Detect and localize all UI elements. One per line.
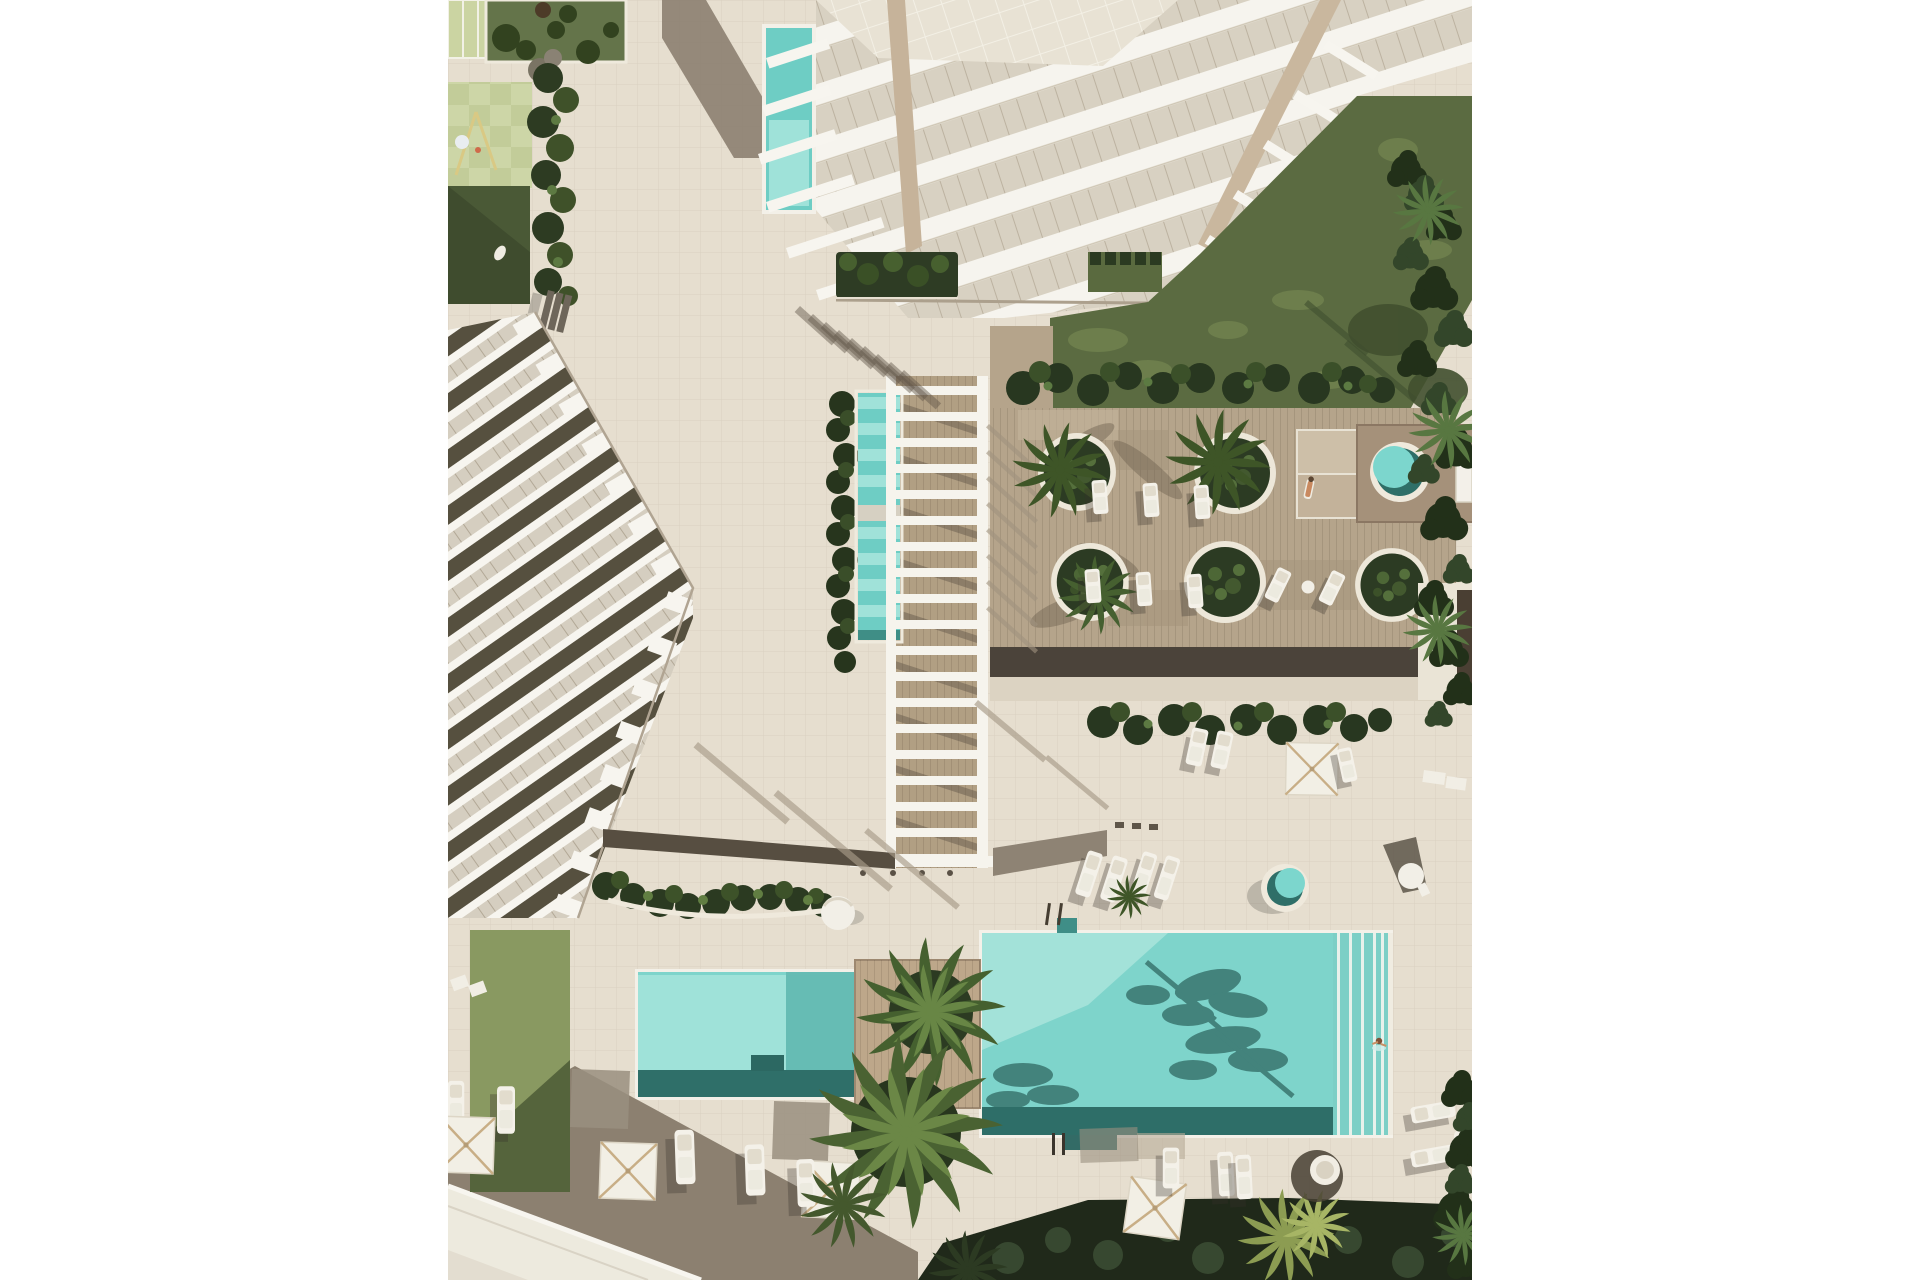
render-canvas bbox=[448, 0, 1472, 1280]
tree-trunk bbox=[535, 2, 551, 18]
deck-steps bbox=[1297, 430, 1357, 518]
parasol-deck-row bbox=[1286, 743, 1339, 796]
letterboxed-page bbox=[0, 0, 1920, 1280]
deck-shadow-band bbox=[990, 647, 1456, 677]
playground bbox=[448, 82, 532, 188]
parasol-1 bbox=[448, 1116, 495, 1174]
render-scene bbox=[448, 0, 1472, 1280]
swim-lane-zone bbox=[1333, 933, 1393, 1135]
spa-tub-east-water bbox=[1373, 446, 1415, 488]
papasan-chair bbox=[1291, 1150, 1343, 1202]
base-planting-bed bbox=[836, 252, 958, 298]
base-hedge-squares bbox=[1090, 252, 1161, 265]
kids-pool-step bbox=[751, 1055, 784, 1071]
deck-south-walk bbox=[990, 677, 1456, 701]
parasol-2 bbox=[599, 1142, 657, 1200]
main-pool bbox=[979, 903, 1393, 1159]
kids-pool bbox=[635, 969, 861, 1100]
